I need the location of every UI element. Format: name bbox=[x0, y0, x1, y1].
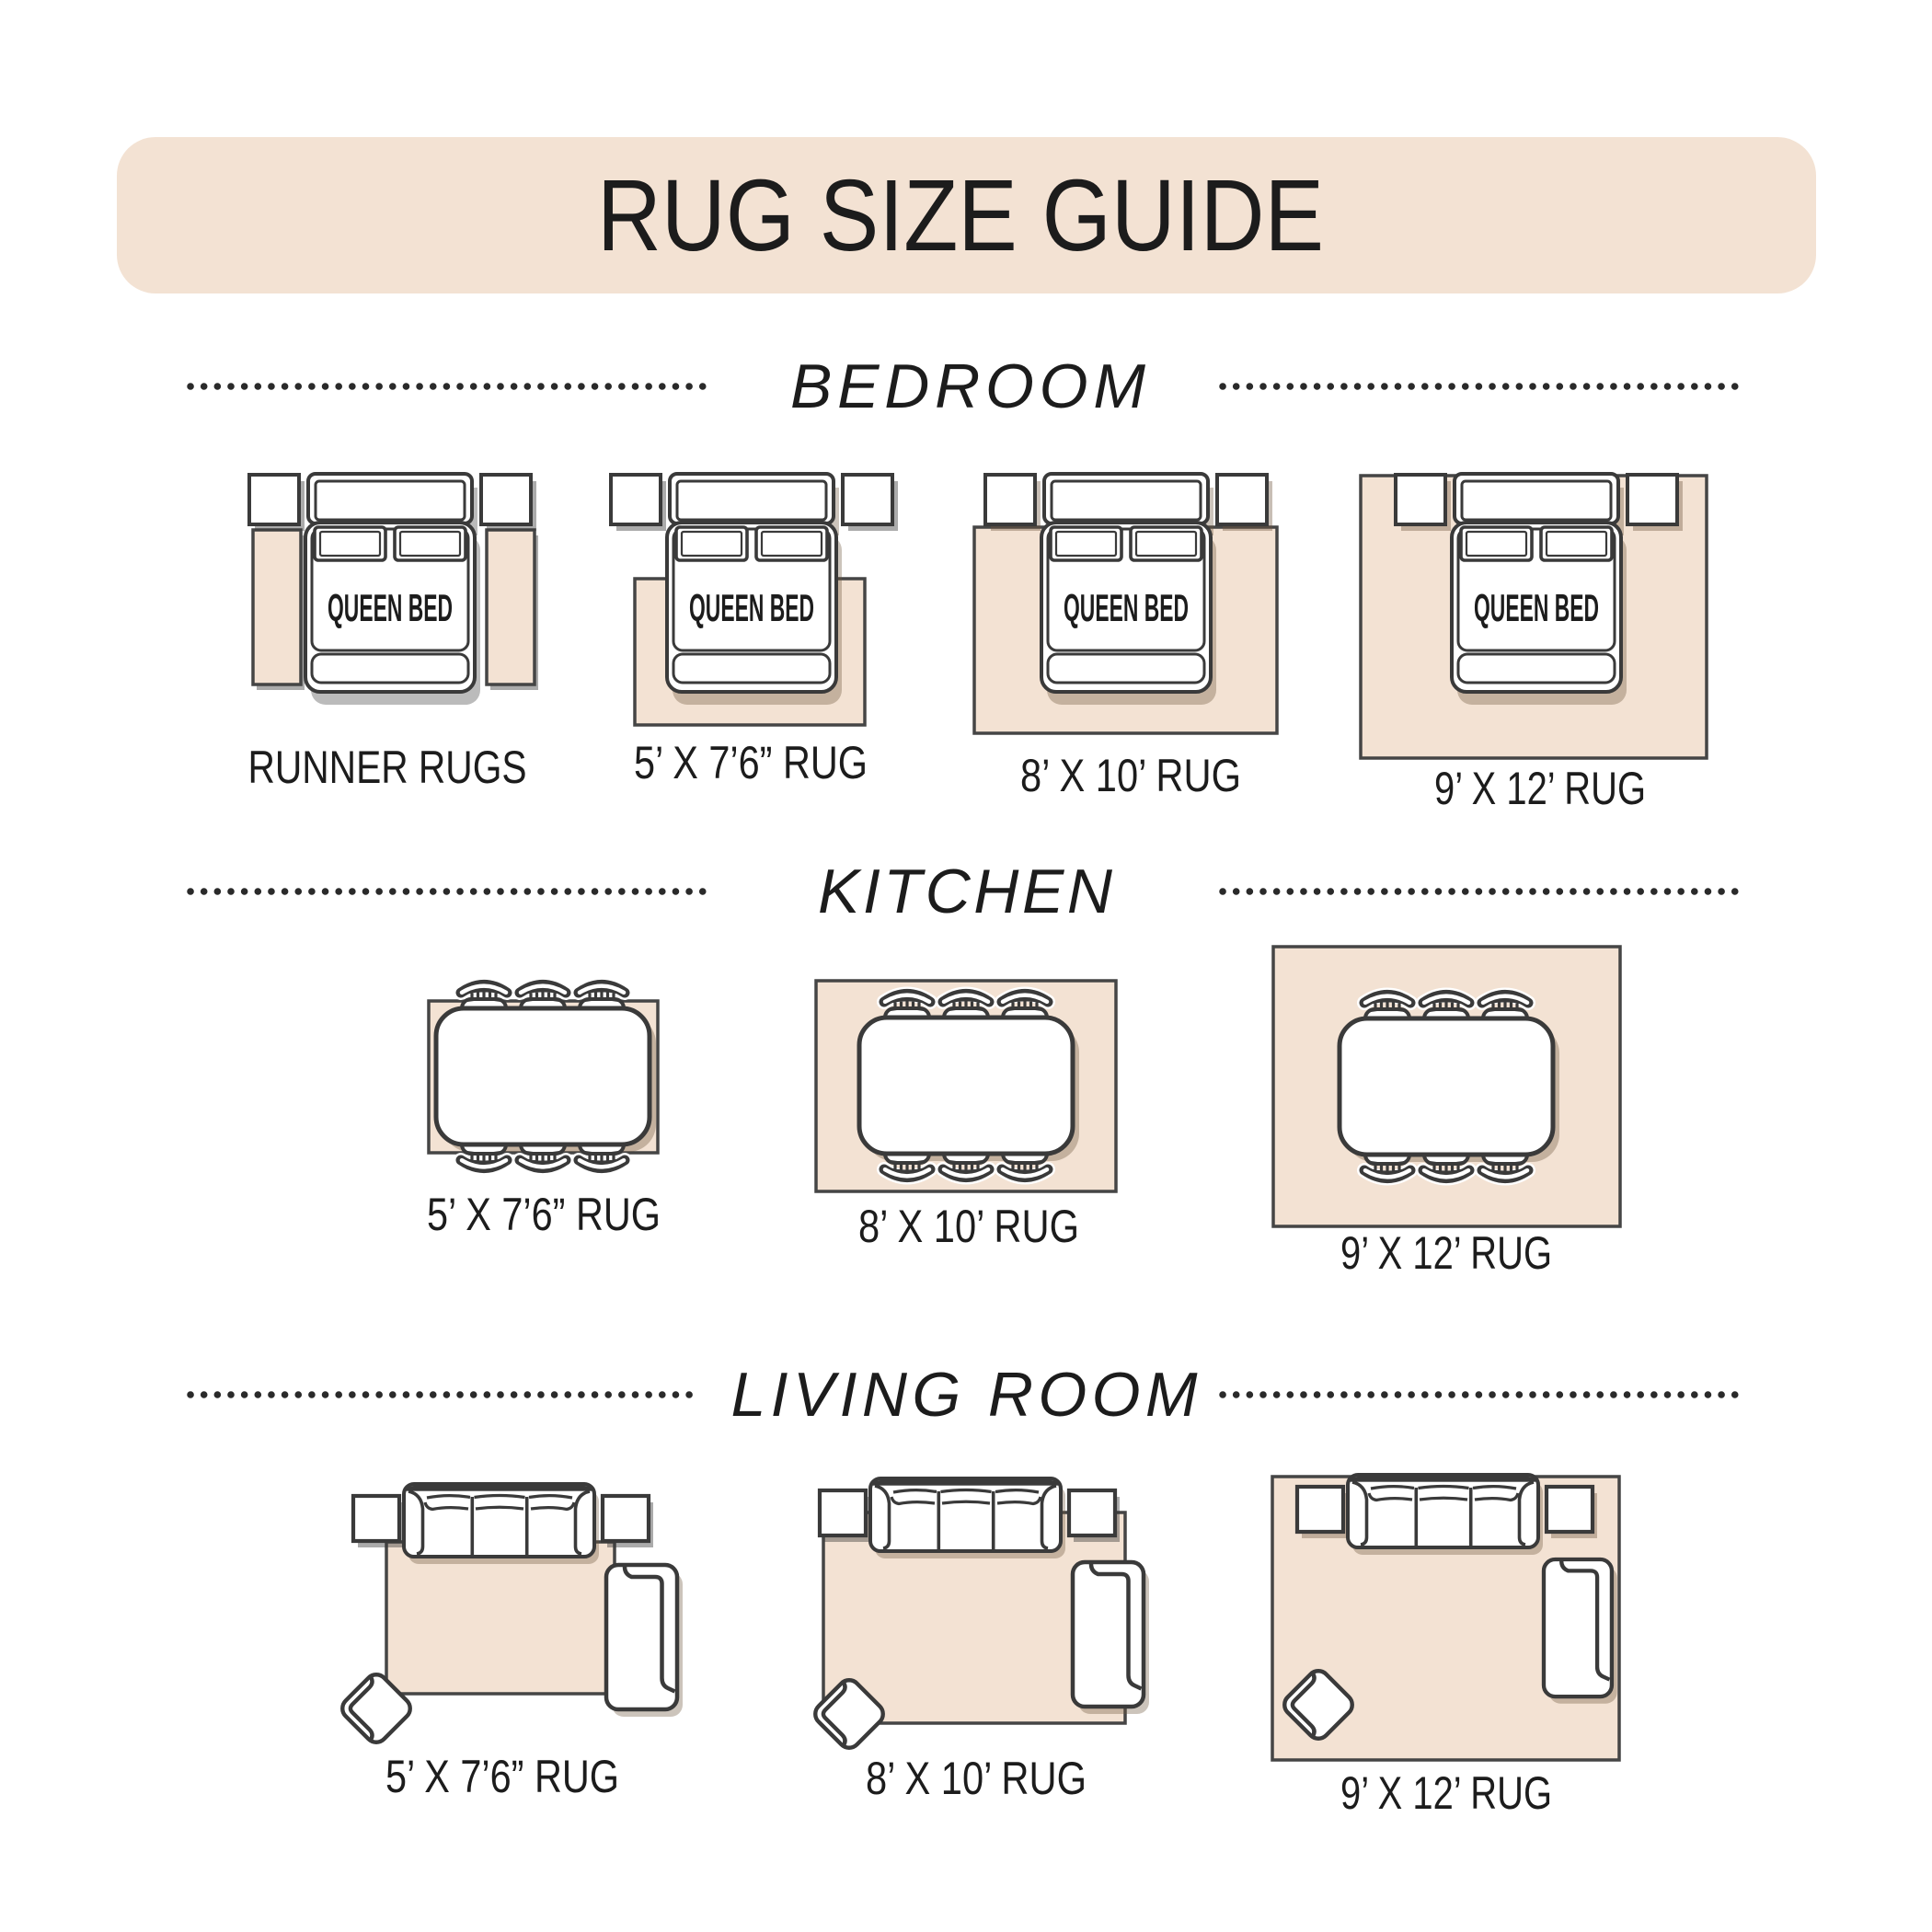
svg-text:RUG SIZE GUIDE: RUG SIZE GUIDE bbox=[597, 159, 1324, 272]
svg-text:8’ X 10’ RUG: 8’ X 10’ RUG bbox=[866, 1753, 1087, 1804]
svg-text:8’ X 10’ RUG: 8’ X 10’ RUG bbox=[858, 1201, 1079, 1252]
svg-text:KITCHEN: KITCHEN bbox=[818, 857, 1113, 926]
svg-text:5’ X 7’6” RUG: 5’ X 7’6” RUG bbox=[634, 737, 868, 788]
svg-text:9’ X 12’ RUG: 9’ X 12’ RUG bbox=[1340, 1227, 1552, 1279]
svg-text:5’ X 7’6” RUG: 5’ X 7’6” RUG bbox=[385, 1751, 619, 1802]
svg-text:9’ X 12’ RUG: 9’ X 12’ RUG bbox=[1434, 763, 1646, 814]
svg-text:8’ X 10’ RUG: 8’ X 10’ RUG bbox=[1020, 750, 1241, 801]
svg-text:5’ X 7’6” RUG: 5’ X 7’6” RUG bbox=[427, 1189, 661, 1240]
svg-text:BEDROOM: BEDROOM bbox=[790, 351, 1145, 421]
svg-text:RUNNER RUGS: RUNNER RUGS bbox=[248, 742, 527, 793]
svg-text:9’ X 12’ RUG: 9’ X 12’ RUG bbox=[1340, 1767, 1552, 1819]
